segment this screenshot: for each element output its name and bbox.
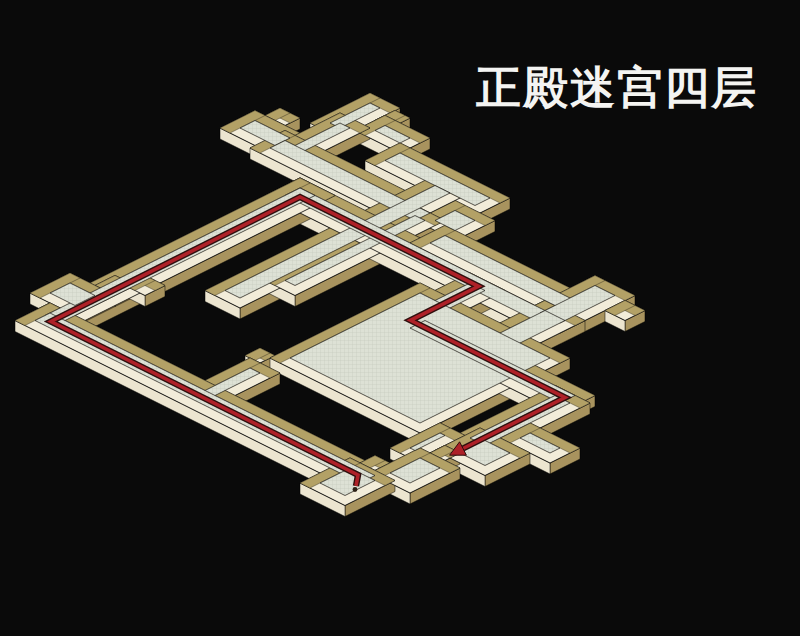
maze-map-stage: 正殿迷宫四层 [0,0,800,636]
map-title: 正殿迷宫四层 [476,58,786,118]
maze-pieces [15,93,645,517]
route-start-dot [353,487,358,492]
